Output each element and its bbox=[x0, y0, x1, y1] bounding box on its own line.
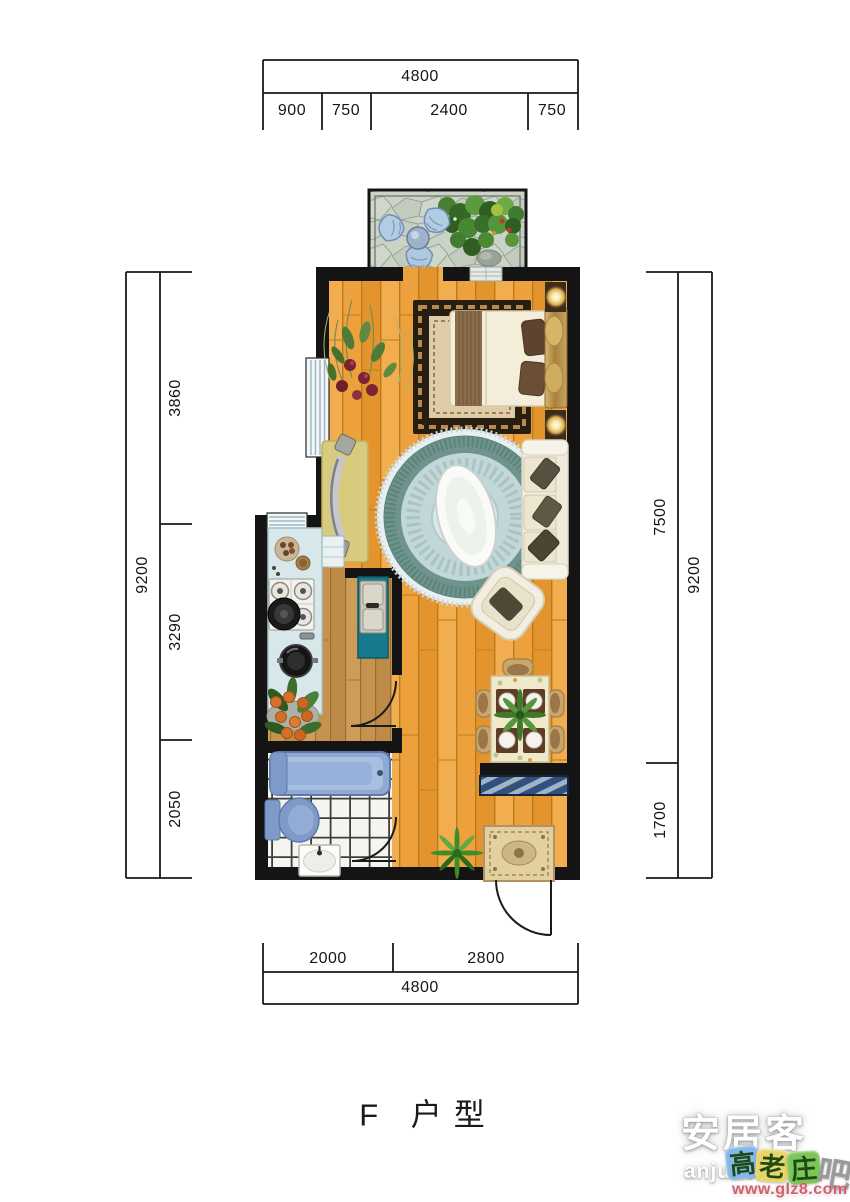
dim-right-seg-1: 7500 bbox=[652, 498, 670, 536]
balcony-door-threshold bbox=[470, 267, 502, 281]
bed bbox=[450, 307, 567, 408]
doormat bbox=[484, 826, 554, 881]
balcony-doorway-floor bbox=[403, 267, 443, 281]
dining-chair bbox=[476, 726, 492, 753]
shoe-cabinet bbox=[480, 776, 568, 795]
dim-bottom-seg-2: 2800 bbox=[467, 950, 505, 968]
dim-left-seg-1: 3860 bbox=[167, 379, 185, 417]
dining-chair bbox=[548, 726, 564, 753]
floorplan-page: 4800 900 750 2400 750 9200 3860 3290 205… bbox=[0, 0, 850, 1202]
dim-top-seg-4: 750 bbox=[538, 102, 566, 120]
watermark-glz8: 高 老 庄 吧 bbox=[726, 1146, 850, 1179]
dim-top-seg-1: 900 bbox=[278, 102, 306, 120]
balcony-table bbox=[407, 227, 429, 249]
dining-chair bbox=[503, 659, 533, 676]
balcony bbox=[369, 190, 526, 272]
toilet bbox=[265, 798, 319, 842]
dim-top-seg-3: 2400 bbox=[430, 102, 468, 120]
dim-bottom-seg-1: 2000 bbox=[309, 950, 347, 968]
downlight bbox=[544, 285, 568, 309]
glz8-char-tile: 老 bbox=[755, 1148, 790, 1183]
dim-bottom-total: 4800 bbox=[401, 979, 439, 997]
dim-top-total: 4800 bbox=[401, 68, 439, 86]
sofa bbox=[522, 440, 568, 579]
bathtub bbox=[270, 752, 390, 795]
floorplan-drawing bbox=[0, 0, 850, 1202]
kitchen-faucet bbox=[300, 633, 314, 639]
bathroom-sink bbox=[299, 845, 340, 876]
dining-chair bbox=[548, 690, 564, 717]
page-title: F 户型 bbox=[359, 1090, 497, 1135]
fruit-plate bbox=[275, 537, 299, 561]
sink-cabinet bbox=[358, 577, 388, 658]
dim-top-seg-2: 750 bbox=[332, 102, 360, 120]
glz8-url: www.glz8.com bbox=[732, 1181, 848, 1199]
dim-right-total: 9200 bbox=[686, 556, 704, 594]
wall-bottom bbox=[255, 867, 487, 880]
dim-left-seg-3: 2050 bbox=[167, 790, 185, 828]
dim-left-seg-2: 3290 bbox=[167, 613, 185, 651]
downlight bbox=[544, 413, 568, 437]
wall-dining-stub bbox=[480, 763, 568, 775]
wok bbox=[268, 598, 300, 630]
dining-table bbox=[491, 676, 549, 762]
dining-chair bbox=[476, 690, 492, 717]
dim-left-total: 9200 bbox=[134, 556, 152, 594]
entrance-door bbox=[496, 880, 551, 935]
dim-right-seg-2: 1700 bbox=[652, 801, 670, 839]
